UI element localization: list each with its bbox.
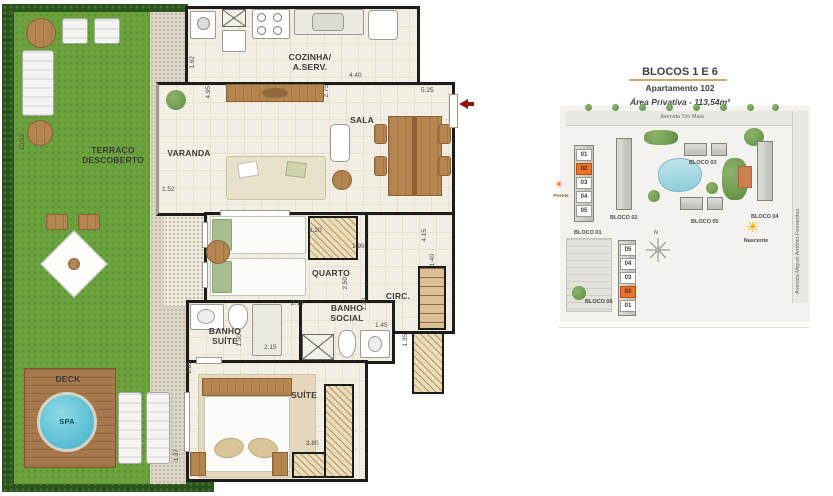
label-bloco-01: BLOCO 01 [574, 230, 602, 236]
room-label-circ: CIRC. [378, 291, 418, 301]
street-top-label: Avenida Tim Maia [622, 114, 742, 120]
compass-icon [646, 238, 670, 262]
garden-bed [644, 130, 678, 145]
burner-icon [257, 26, 266, 35]
street-right-label: Avenida Miguel Antônio Fernandes [795, 128, 801, 294]
dim-bsuite-height: 1.50 [236, 334, 243, 347]
sitemap-title: BLOCOS 1 E 6 [600, 66, 760, 78]
dim-suite-width: 3.80 [306, 440, 319, 447]
laundry-tank-icon [222, 30, 246, 52]
brochure-page: 10.52 TERRAÇO DESCOBERTO DECK SPA COZINH… [0, 0, 833, 496]
dim-closet2-height: 1.35 [402, 334, 409, 347]
compass-n-label: N [654, 230, 658, 236]
sun-lounger [146, 392, 170, 464]
fridge-icon [368, 10, 398, 40]
dim-sala-width: 5.25 [421, 87, 434, 94]
building-bloco-03 [684, 143, 707, 156]
tree-icon [648, 190, 660, 202]
hall-closet [418, 266, 446, 330]
nightstand [206, 240, 230, 264]
sun-west-icon: ☀ [554, 180, 564, 191]
garden-round-table [26, 18, 56, 48]
sofa-pillow [285, 161, 307, 178]
dim-suite-top: 2.85 [186, 361, 193, 374]
room-label-banho-suite: BANHO SUÍTE [194, 326, 256, 346]
unit-cell: 04 [620, 258, 636, 270]
dim-terrace-edge: 1.52 [162, 186, 175, 193]
shower-box-icon [302, 334, 334, 360]
basin-icon [197, 309, 215, 324]
dim-quarto-right: 1.95 [352, 243, 365, 250]
unit-cell: 01 [576, 149, 592, 161]
tv-cabinet [330, 124, 350, 162]
dim-suite-left: 1.37 [173, 449, 180, 462]
room-label-varanda: VARANDA [160, 148, 218, 158]
sofa-pillow [237, 161, 259, 179]
table-runner [412, 116, 417, 196]
burner-icon [257, 13, 266, 22]
dim-varanda-height: 4.95 [205, 86, 212, 99]
room-label-quarto: QUARTO [305, 268, 357, 278]
dim-cozinha-left: 1.62 [189, 56, 196, 69]
unit-cell: 05 [620, 244, 636, 256]
side-table [332, 170, 352, 190]
sun-west-label: Poente [549, 193, 573, 198]
tree-icon [772, 104, 779, 111]
sideboard-bowl-icon [262, 88, 288, 98]
dim-bsuite-width: 2.15 [264, 344, 277, 351]
nightstand [272, 452, 288, 476]
dim-quarto-height: 2.50 [342, 277, 349, 290]
dining-chair [438, 156, 451, 176]
parasol-table [68, 258, 80, 270]
sun-lounger [118, 392, 142, 464]
tree-icon [666, 104, 673, 111]
suite-wardrobe [324, 384, 354, 478]
tree-icon [747, 104, 754, 111]
bed-headboard [202, 378, 292, 396]
title-rule [629, 79, 727, 81]
quarto-window [202, 262, 208, 288]
entrance-arrow-tail [468, 102, 474, 106]
quarto-window [202, 222, 208, 248]
entrance-arrow-icon [459, 99, 468, 109]
unit-cell-highlighted: 02 [576, 163, 592, 175]
dim-quarto-width: 3.20 [309, 227, 322, 234]
label-bloco-05: BLOCO 05 [691, 219, 719, 225]
quarto-wardrobe [308, 216, 358, 260]
room-label-spa: SPA [37, 417, 97, 426]
toilet-icon [338, 330, 356, 358]
building-bloco-05 [707, 197, 723, 210]
suite-door [196, 357, 222, 364]
building-bloco-03 [711, 143, 727, 156]
panel-divider [558, 327, 810, 328]
label-bloco-02: BLOCO 02 [610, 215, 638, 221]
basin-icon [368, 336, 382, 352]
unit-cell: 04 [576, 191, 592, 203]
tree-icon [572, 286, 586, 300]
suite-window [184, 392, 190, 452]
room-label-cozinha: COZINHA/ A.SERV. [268, 52, 352, 72]
unit-cell: 01 [620, 300, 636, 312]
bed-pillow [212, 261, 232, 293]
tree-icon [720, 104, 727, 111]
label-bloco-06: BLOCO 06 [585, 299, 613, 305]
suite-wardrobe-corner [292, 452, 326, 478]
building-bloco-05 [680, 197, 703, 210]
garden-round-table [27, 120, 53, 146]
sun-east-label: Nascente [740, 238, 772, 244]
garden-sofa [22, 50, 54, 116]
unit-cell-highlighted: 02 [620, 286, 636, 298]
dim-cozinha-width: 4.40 [349, 72, 362, 79]
tall-wardrobe [412, 332, 444, 394]
burner-icon [273, 13, 282, 22]
unit-cell: 03 [620, 272, 636, 284]
burner-icon [273, 26, 282, 35]
washer-drum-icon [197, 17, 210, 30]
unit-cell: 03 [576, 177, 592, 189]
sink-icon [312, 13, 344, 31]
garden-armchair [94, 18, 120, 44]
duct-icon [222, 9, 246, 27]
room-label-terraco: TERRAÇO DESCOBERTO [58, 145, 168, 165]
dim-social-width: 2.15 [291, 300, 304, 307]
room-label-suite: SUÍTE [282, 390, 326, 400]
building-bloco-02 [616, 138, 632, 210]
dining-chair [374, 124, 387, 144]
dim-terrace-height: 10.52 [19, 134, 26, 150]
tree-icon [585, 104, 592, 111]
garden-chair [46, 214, 68, 230]
dim-sala-left: 2.75 [323, 85, 330, 98]
dim-closet-width: 1.40 [429, 254, 436, 267]
sport-court [738, 166, 752, 188]
room-label-banho-social: BANHO SOCIAL [316, 303, 378, 323]
nightstand [190, 452, 206, 476]
entry-door [449, 94, 458, 128]
tree-icon [612, 104, 619, 111]
potted-plant-icon [166, 90, 186, 110]
gravel-path-top [150, 12, 186, 84]
room-label-deck: DECK [46, 374, 90, 384]
sitemap-subtitle: Apartamento 102 [600, 83, 760, 93]
side-walkway [164, 212, 206, 306]
tree-icon [693, 104, 700, 111]
label-bloco-03: BLOCO 03 [689, 160, 717, 166]
garden-chair [78, 214, 100, 230]
dining-chair [374, 156, 387, 176]
unit-cell: 05 [576, 205, 592, 217]
dim-circ-height: 4.15 [421, 229, 428, 242]
tree-icon [639, 104, 646, 111]
sun-east-icon: ☀ [746, 220, 759, 235]
tree-icon [706, 182, 718, 194]
garden-armchair [62, 18, 88, 44]
building-bloco-04 [757, 141, 773, 201]
